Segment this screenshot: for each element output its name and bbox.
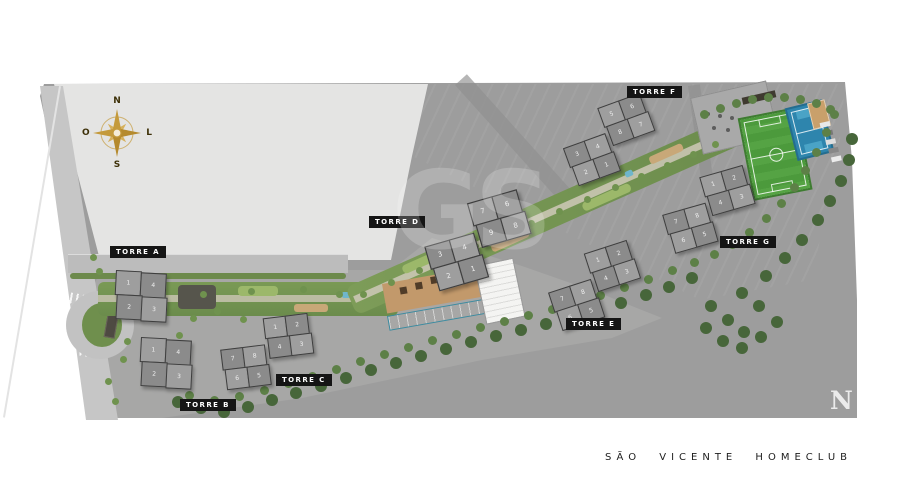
deck-furniture (706, 112, 710, 116)
compass-rose: N S O L (88, 96, 146, 170)
site-plan-canvas: 1 4 2 3 1 4 2 3 1 2 4 3 7 8 6 5 7 6 9 8 … (0, 0, 900, 498)
tower-label-f: TORRE F (627, 86, 682, 98)
project-title: SÃO VICENTE HOMECLUB (605, 452, 852, 463)
tree-band-light (0, 0, 7, 7)
unit-number: 2 (140, 361, 167, 387)
unit-number: 1 (140, 337, 167, 363)
unit-number: 2 (115, 294, 142, 320)
tower-label-g: TORRE G (720, 236, 776, 248)
garden-bed (294, 304, 328, 312)
street-hedge (70, 273, 346, 279)
tower-label-c: TORRE C (276, 374, 332, 386)
unit-number: 5 (246, 364, 271, 388)
unit-number: 1 (115, 270, 142, 296)
compass-east-label: L (146, 128, 152, 138)
corner-logo: N (830, 386, 853, 415)
tower-label-e: TORRE E (566, 318, 621, 330)
compass-west-label: O (82, 128, 90, 138)
curb (3, 86, 61, 418)
cabanas (399, 286, 407, 294)
unit-number: 4 (165, 339, 192, 365)
developer-watermark: GS (392, 158, 546, 266)
tower-label-b: TORRE B (180, 399, 236, 411)
unit-number: 3 (289, 333, 314, 357)
unit-number: 3 (165, 363, 192, 389)
compass-north-label: N (113, 96, 121, 106)
compass-south-label: S (114, 160, 120, 170)
tower-label-a: TORRE A (110, 246, 166, 258)
lawn (238, 286, 278, 296)
compass-star-icon (88, 96, 146, 170)
unit-number: 3 (140, 296, 167, 322)
crosswalk (44, 262, 66, 274)
unit-number: 4 (140, 272, 167, 298)
playground (178, 285, 216, 309)
